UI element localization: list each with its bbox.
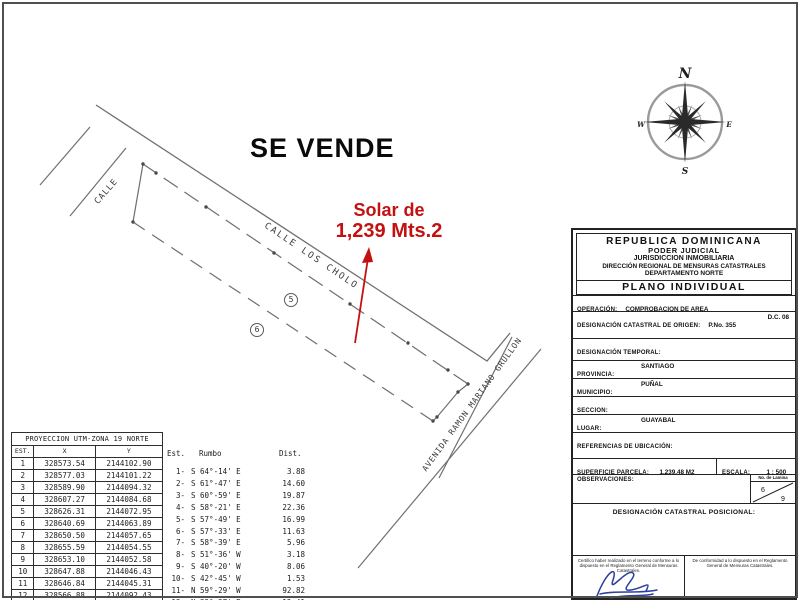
utm-cell: 2144054.55: [95, 542, 162, 554]
field-value: P.No. 355: [708, 322, 736, 329]
utm-header-cell: Y: [95, 446, 162, 458]
bearing-cell: 5.96: [279, 537, 305, 549]
bearing-cell: 10-: [165, 573, 185, 585]
bearing-row: 1-S 64°-14' E3.88: [165, 466, 305, 478]
utm-cell: 328577.03: [34, 470, 95, 482]
utm-cell: 2144052.58: [95, 554, 162, 566]
utm-header-cell: X: [34, 446, 95, 458]
bearing-cell: N 59°-29' W: [185, 585, 279, 597]
bearing-cell: 3-: [165, 490, 185, 502]
utm-row: 5328626.312144072.95: [12, 506, 163, 518]
bearing-cell: 92.82: [279, 585, 305, 597]
parcel-north-boundary: [143, 164, 468, 384]
utm-row: 12328566.882144092.43: [12, 590, 163, 600]
utm-cell: 328626.31: [34, 506, 95, 518]
utm-cell: 328573.54: [34, 458, 95, 470]
bearing-cell: 8.06: [279, 561, 305, 573]
bearing-cell: 2-: [165, 478, 185, 490]
title-block-field-row: REFERENCIAS DE UBICACIÓN:: [573, 432, 795, 458]
utm-cell: 328646.84: [34, 578, 95, 590]
lamina-top-value: 6: [761, 487, 765, 494]
left-street-edge-1: [40, 127, 90, 185]
bearing-row: 10-S 42°-45' W1.53: [165, 573, 305, 585]
field-value: GUAYABAL: [641, 417, 676, 424]
avenue-label: AVENIDA RAMON MARIANO GRULLON: [420, 336, 523, 473]
bearing-cell: 3.18: [279, 549, 305, 561]
title-block-header: REPUBLICA DOMINICANA PODER JUDICIAL JURI…: [576, 233, 792, 281]
avenue-far-edge-line: [358, 349, 541, 568]
utm-cell: 328655.59: [34, 542, 95, 554]
bearing-cell: S 64°-14' E: [185, 466, 279, 478]
lot-number-6: 6: [250, 323, 264, 337]
compass-s-label: S: [682, 167, 689, 177]
bearing-cell: 16.99: [279, 514, 305, 526]
utm-cell: 2144045.31: [95, 578, 162, 590]
title-block-field-row: DESIGNACIÓN TEMPORAL:: [573, 338, 795, 360]
utm-cell: 7: [12, 530, 34, 542]
utm-cell: 2144072.95: [95, 506, 162, 518]
utm-cell: 2144101.22: [95, 470, 162, 482]
bearing-cell: 19.87: [279, 490, 305, 502]
observaciones-row: OBSERVACIONES: No. de Lamina 6 9: [573, 474, 795, 503]
utm-row: 11328646.842144045.31: [12, 578, 163, 590]
designacion-posicional-label: DESIGNACIÓN CATASTRAL POSICIONAL:: [613, 509, 756, 516]
utm-cell: 2144092.43: [95, 590, 162, 600]
utm-cell: 2144057.65: [95, 530, 162, 542]
bearing-cell: S 40°-20' W: [185, 561, 279, 573]
title-block-field-row: MUNICIPIO:PUÑAL: [573, 378, 795, 396]
director-cert-text: De conformidad a lo dispuesto en el Regl…: [688, 558, 792, 568]
solar-area-line2: 1,239 Mts.2: [300, 220, 478, 242]
bearing-cell: 1-: [165, 466, 185, 478]
utm-row: 10328647.882144046.43: [12, 566, 163, 578]
utm-cell: 3: [12, 482, 34, 494]
bearing-row: 8-S 51°-36' W3.18: [165, 549, 305, 561]
utm-cell: 1: [12, 458, 34, 470]
bearing-cell: S 58°-21' E: [185, 502, 279, 514]
designacion-posicional-row: DESIGNACIÓN CATASTRAL POSICIONAL:: [573, 503, 795, 555]
bearing-cell: S 57°-33' E: [185, 526, 279, 538]
bearing-cell: 22.36: [279, 502, 305, 514]
field-value: PUÑAL: [641, 381, 663, 388]
lamina-diagonal-cell: 6 9: [751, 482, 795, 503]
header-departamento: DEPARTAMENTO NORTE: [577, 270, 791, 280]
utm-cell: 328640.69: [34, 518, 95, 530]
bearing-header-cell: Est.: [165, 448, 185, 466]
bearing-cell: S 51°-36' W: [185, 549, 279, 561]
observaciones-label: OBSERVACIONES:: [577, 477, 634, 483]
street-left-label: CALLE: [93, 177, 121, 207]
bearing-cell: 6-: [165, 526, 185, 538]
bearing-cell: S 57°-49' E: [185, 514, 279, 526]
utm-cell: 2144102.90: [95, 458, 162, 470]
compass-rose-icon: N S W E: [637, 66, 732, 177]
superficie-escala-divider: [716, 459, 717, 474]
utm-cell: 328589.90: [34, 482, 95, 494]
utm-cell: 12: [12, 590, 34, 600]
bearing-cell: S 58°-39' E: [185, 537, 279, 549]
utm-cell: 8: [12, 542, 34, 554]
field-value: SANTIAGO: [641, 363, 674, 370]
utm-header-cell: EST.: [12, 446, 34, 458]
utm-cell: 2144094.32: [95, 482, 162, 494]
bearing-header-cell: Rumbo: [185, 448, 279, 466]
utm-row: 9328653.102144052.58: [12, 554, 163, 566]
bearing-row: 9-S 40°-20' W8.06: [165, 561, 305, 573]
title-block-field-row: SECCION:: [573, 396, 795, 414]
compass-w-label: W: [637, 120, 646, 129]
bearing-table: Est.RumboDist.1-S 64°-14' E3.882-S 61°-4…: [165, 448, 305, 600]
utm-cell: 328607.27: [34, 494, 95, 506]
title-block-field-row: DESIGNACIÓN CATASTRAL DE ORIGEN:P.No. 35…: [573, 311, 795, 338]
parcel-west-cap: [133, 164, 143, 222]
solar-area-line1: Solar de: [300, 201, 478, 220]
utm-row: 6328640.692144063.89: [12, 518, 163, 530]
utm-cell: 9: [12, 554, 34, 566]
bearing-cell: 14.60: [279, 478, 305, 490]
utm-cell: 2144063.89: [95, 518, 162, 530]
field-label: DESIGNACIÓN CATASTRAL DE ORIGEN:: [577, 323, 700, 329]
director-signature-rule: [690, 597, 790, 598]
bearing-row: 5-S 57°-49' E16.99: [165, 514, 305, 526]
bearing-cell: 11.63: [279, 526, 305, 538]
bearing-cell: S 61°-47' E: [185, 478, 279, 490]
utm-cell: 328566.88: [34, 590, 95, 600]
compass-e-label: E: [725, 120, 732, 129]
bearing-cell: 1.53: [279, 573, 305, 585]
se-vende-label: SE VENDE: [250, 133, 395, 164]
bearing-header-cell: Dist.: [279, 448, 305, 466]
bearing-row: 2-S 61°-47' E14.60: [165, 478, 305, 490]
bearing-cell: S 42°-45' W: [185, 573, 279, 585]
red-arrow: [355, 247, 373, 343]
title-block: REPUBLICA DOMINICANA PODER JUDICIAL JURI…: [571, 228, 797, 600]
surveyor-signature-box: Certifico haber realizado en el terreno …: [573, 556, 685, 600]
lamina-label: No. de Lamina: [751, 475, 795, 482]
bearing-cell: 11-: [165, 585, 185, 597]
field-label: DESIGNACIÓN TEMPORAL:: [577, 350, 661, 356]
utm-header-row: EST.XY: [12, 446, 163, 458]
header-direccion: DIRECCIÓN REGIONAL DE MENSURAS CATASTRAL…: [577, 263, 791, 270]
bearing-cell: S 60°-59' E: [185, 490, 279, 502]
lot-number-5: 5: [284, 293, 298, 307]
lamina-bottom-value: 9: [781, 496, 785, 503]
signature-scribble: [587, 564, 667, 600]
compass-n-label: N: [678, 66, 693, 82]
title-block-field-row: PROVINCIA:SANTIAGO: [573, 360, 795, 378]
utm-row: 7328650.502144057.65: [12, 530, 163, 542]
title-block-field-row: LUGAR:GUAYABAL: [573, 414, 795, 432]
bearing-row: 3-S 60°-59' E19.87: [165, 490, 305, 502]
signature-row: Certifico haber realizado en el terreno …: [573, 555, 795, 600]
bearing-cell: 5-: [165, 514, 185, 526]
bearing-header-row: Est.RumboDist.: [165, 448, 305, 466]
plano-individual-title: PLANO INDIVIDUAL: [576, 281, 792, 295]
header-poder-judicial: PODER JUDICIAL: [577, 247, 791, 255]
utm-cell: 328650.50: [34, 530, 95, 542]
bearing-row: 7-S 58°-39' E5.96: [165, 537, 305, 549]
utm-cell: 10: [12, 566, 34, 578]
utm-cell: 328653.10: [34, 554, 95, 566]
bearing-cell: 8-: [165, 549, 185, 561]
utm-row: 1328573.542144102.90: [12, 458, 163, 470]
utm-title-row: PROYECCION UTM-ZONA 19 NORTE: [12, 433, 163, 446]
bearing-cell: 9-: [165, 561, 185, 573]
director-signature-box: De conformidad a lo dispuesto en el Regl…: [685, 556, 795, 600]
field-extra: D.C. 08: [768, 314, 789, 321]
utm-cell: 11: [12, 578, 34, 590]
bearing-cell: 4-: [165, 502, 185, 514]
utm-cell: 4: [12, 494, 34, 506]
bearing-cell: 3.88: [279, 466, 305, 478]
title-block-rows: OPERACIÓN:COMPROBACION DE AREADESIGNACIÓ…: [573, 295, 795, 458]
solar-area-label: Solar de 1,239 Mts.2: [300, 201, 478, 242]
utm-title: PROYECCION UTM-ZONA 19 NORTE: [12, 433, 163, 446]
utm-cell: 2: [12, 470, 34, 482]
utm-row: 2328577.032144101.22: [12, 470, 163, 482]
utm-cell: 2144084.68: [95, 494, 162, 506]
bearing-cell: 7-: [165, 537, 185, 549]
lamina-box: No. de Lamina 6 9: [750, 475, 795, 504]
utm-cell: 6: [12, 518, 34, 530]
bearing-row: 6-S 57°-33' E11.63: [165, 526, 305, 538]
utm-table: PROYECCION UTM-ZONA 19 NORTEEST.XY132857…: [11, 432, 163, 600]
header-jurisdiccion: JURISDICCION INMOBILIARIA: [577, 255, 791, 263]
utm-cell: 5: [12, 506, 34, 518]
field-label: REFERENCIAS DE UBICACIÓN:: [577, 444, 673, 450]
utm-row: 8328655.592144054.55: [12, 542, 163, 554]
utm-row: 3328589.902144094.32: [12, 482, 163, 494]
bearing-row: 11-N 59°-29' W92.82: [165, 585, 305, 597]
utm-cell: 328647.88: [34, 566, 95, 578]
parcel-south-boundary: [133, 222, 433, 421]
title-block-field-row: OPERACIÓN:COMPROBACION DE AREA: [573, 295, 795, 311]
superficie-escala-row: SUPERFICIE PARCELA: 1,239.48 M2 ESCALA: …: [573, 458, 795, 474]
survey-sheet: CALLE LOS CHOLO CALLE AVENIDA RAMON MARI…: [0, 0, 800, 600]
utm-cell: 2144046.43: [95, 566, 162, 578]
utm-row: 4328607.272144084.68: [12, 494, 163, 506]
bearing-row: 4-S 58°-21' E22.36: [165, 502, 305, 514]
